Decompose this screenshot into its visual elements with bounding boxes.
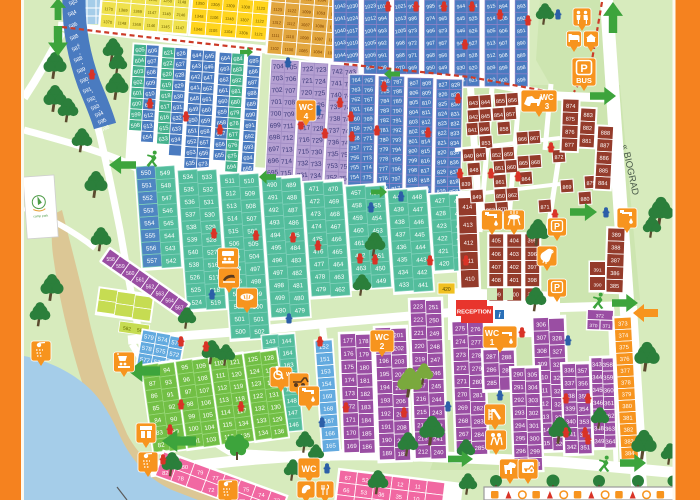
svg-text:1346: 1346 bbox=[193, 26, 203, 32]
svg-text:189: 189 bbox=[382, 451, 393, 457]
svg-text:854: 854 bbox=[494, 113, 503, 120]
svg-text:538: 538 bbox=[186, 224, 197, 232]
svg-text:174: 174 bbox=[344, 378, 355, 384]
svg-text:342: 342 bbox=[567, 445, 578, 451]
svg-text:513: 513 bbox=[226, 203, 237, 211]
svg-text:558: 558 bbox=[106, 257, 115, 263]
svg-text:555: 555 bbox=[145, 232, 156, 240]
svg-text:582: 582 bbox=[123, 326, 132, 333]
svg-text:RECEPTION: RECEPTION bbox=[457, 310, 491, 316]
svg-text:308: 308 bbox=[537, 349, 548, 355]
svg-text:108: 108 bbox=[197, 375, 209, 383]
svg-text:184: 184 bbox=[361, 418, 372, 424]
svg-text:511: 511 bbox=[225, 177, 236, 185]
svg-text:285: 285 bbox=[475, 446, 486, 452]
svg-text:849: 849 bbox=[472, 195, 481, 202]
svg-text:190: 190 bbox=[382, 438, 393, 444]
svg-text:489: 489 bbox=[286, 182, 297, 190]
svg-text:536: 536 bbox=[184, 199, 195, 207]
svg-text:10: 10 bbox=[413, 497, 420, 500]
svg-text:875: 875 bbox=[566, 117, 576, 123]
svg-text:276: 276 bbox=[470, 327, 481, 333]
svg-text:734: 734 bbox=[310, 172, 322, 180]
svg-text:72: 72 bbox=[208, 488, 214, 494]
svg-text:445: 445 bbox=[414, 231, 425, 239]
svg-text:510: 510 bbox=[244, 178, 255, 186]
svg-text:206: 206 bbox=[396, 399, 407, 405]
svg-text:130: 130 bbox=[270, 403, 282, 411]
svg-text:460: 460 bbox=[353, 227, 364, 235]
svg-text:553: 553 bbox=[143, 207, 154, 215]
svg-text:375: 375 bbox=[619, 345, 629, 351]
svg-text:381: 381 bbox=[623, 416, 633, 422]
svg-text:153: 153 bbox=[321, 369, 332, 376]
svg-text:487: 487 bbox=[287, 207, 298, 215]
svg-text:36: 36 bbox=[378, 492, 385, 499]
svg-text:105: 105 bbox=[202, 411, 214, 419]
svg-text:722: 722 bbox=[302, 66, 314, 74]
svg-text:857: 857 bbox=[506, 112, 515, 119]
svg-text:457: 457 bbox=[351, 189, 362, 197]
svg-text:1147: 1147 bbox=[175, 25, 185, 31]
svg-text:1112: 1112 bbox=[287, 21, 296, 27]
svg-text:509: 509 bbox=[245, 190, 256, 198]
svg-text:732: 732 bbox=[297, 160, 309, 168]
svg-text:398: 398 bbox=[528, 278, 537, 284]
svg-text:499: 499 bbox=[274, 295, 285, 303]
svg-text:136: 136 bbox=[274, 428, 286, 436]
svg-text:871: 871 bbox=[540, 205, 549, 212]
svg-text:442: 442 bbox=[417, 269, 428, 277]
svg-text:1148: 1148 bbox=[177, 0, 187, 5]
svg-text:733: 733 bbox=[310, 161, 322, 169]
svg-text:195: 195 bbox=[379, 372, 390, 378]
svg-text:82: 82 bbox=[162, 471, 168, 477]
svg-text:470: 470 bbox=[328, 186, 339, 194]
svg-text:459: 459 bbox=[352, 215, 363, 223]
svg-text:706: 706 bbox=[285, 76, 297, 84]
svg-text:397: 397 bbox=[528, 265, 537, 271]
svg-text:1350: 1350 bbox=[195, 0, 205, 6]
svg-text:165: 165 bbox=[326, 443, 337, 450]
svg-text:166: 166 bbox=[325, 431, 336, 438]
svg-text:482: 482 bbox=[292, 270, 303, 278]
svg-text:78: 78 bbox=[177, 477, 183, 483]
svg-text:728: 728 bbox=[312, 125, 324, 133]
svg-text:421: 421 bbox=[438, 248, 449, 256]
svg-text:714: 714 bbox=[281, 158, 293, 166]
svg-text:700: 700 bbox=[270, 110, 282, 118]
svg-text:115: 115 bbox=[222, 421, 233, 429]
svg-text:707: 707 bbox=[285, 87, 297, 95]
svg-text:483: 483 bbox=[291, 257, 302, 265]
svg-text:448: 448 bbox=[412, 194, 423, 202]
svg-text:107: 107 bbox=[199, 387, 211, 395]
svg-text:720: 720 bbox=[301, 89, 313, 97]
svg-text:1102: 1102 bbox=[270, 46, 280, 52]
svg-text:562: 562 bbox=[146, 285, 155, 291]
svg-text:463: 463 bbox=[356, 265, 367, 273]
svg-text:846: 846 bbox=[480, 127, 489, 134]
svg-text:491: 491 bbox=[267, 194, 278, 202]
svg-text:480: 480 bbox=[275, 307, 286, 315]
svg-text:285: 285 bbox=[487, 381, 498, 387]
svg-text:391: 391 bbox=[593, 268, 601, 274]
svg-text:443: 443 bbox=[416, 256, 427, 264]
svg-text:344: 344 bbox=[592, 375, 603, 381]
svg-text:220: 220 bbox=[414, 344, 425, 350]
svg-text:279: 279 bbox=[472, 367, 483, 373]
svg-text:299: 299 bbox=[530, 449, 541, 455]
svg-text:124: 124 bbox=[249, 368, 261, 376]
svg-text:387: 387 bbox=[611, 258, 621, 264]
svg-text:435: 435 bbox=[397, 256, 408, 264]
svg-text:1099: 1099 bbox=[302, 9, 312, 15]
svg-text:500: 500 bbox=[235, 328, 246, 336]
svg-text:737: 737 bbox=[328, 127, 340, 135]
svg-text:711: 711 bbox=[283, 123, 294, 131]
svg-text:300: 300 bbox=[529, 436, 540, 442]
svg-text:492: 492 bbox=[268, 207, 279, 215]
svg-text:458: 458 bbox=[351, 202, 362, 210]
svg-text:1122: 1122 bbox=[255, 18, 265, 24]
svg-text:881: 881 bbox=[582, 139, 592, 145]
svg-text:283: 283 bbox=[474, 419, 485, 425]
svg-text:848: 848 bbox=[469, 168, 478, 175]
svg-text:402: 402 bbox=[510, 265, 519, 271]
svg-text:479: 479 bbox=[316, 286, 327, 294]
svg-text:493: 493 bbox=[269, 219, 280, 227]
svg-text:1309: 1309 bbox=[226, 3, 236, 9]
svg-text:1053: 1053 bbox=[316, 10, 326, 16]
svg-text:545: 545 bbox=[163, 220, 174, 228]
svg-text:303: 303 bbox=[528, 398, 539, 404]
svg-text:1308: 1308 bbox=[241, 4, 251, 10]
svg-text:850: 850 bbox=[496, 194, 505, 201]
svg-text:880: 880 bbox=[580, 197, 589, 204]
svg-text:730: 730 bbox=[311, 149, 323, 157]
svg-text:742: 742 bbox=[332, 68, 344, 76]
svg-text:134: 134 bbox=[258, 429, 270, 437]
svg-text:353: 353 bbox=[579, 420, 590, 426]
svg-text:427: 427 bbox=[435, 197, 446, 205]
svg-text:515: 515 bbox=[228, 228, 239, 236]
svg-text:110: 110 bbox=[214, 359, 225, 367]
svg-text:1106: 1106 bbox=[210, 15, 220, 21]
svg-text:336: 336 bbox=[564, 368, 575, 374]
svg-text:1306: 1306 bbox=[239, 30, 249, 36]
svg-text:481: 481 bbox=[293, 282, 304, 290]
svg-text:1110: 1110 bbox=[286, 34, 295, 40]
svg-text:852: 852 bbox=[492, 153, 501, 160]
svg-text:129: 129 bbox=[272, 416, 284, 424]
svg-text:346: 346 bbox=[593, 401, 604, 407]
svg-text:343: 343 bbox=[592, 362, 603, 368]
svg-text:1111: 1111 bbox=[271, 33, 280, 39]
svg-text:1312: 1312 bbox=[272, 20, 282, 26]
svg-text:1370: 1370 bbox=[103, 19, 113, 25]
svg-text:851: 851 bbox=[495, 166, 504, 173]
svg-text:286: 286 bbox=[486, 368, 497, 374]
svg-text:181: 181 bbox=[360, 379, 371, 385]
svg-text:185: 185 bbox=[362, 431, 373, 437]
svg-text:143: 143 bbox=[265, 339, 276, 346]
svg-text:202: 202 bbox=[394, 346, 405, 352]
svg-text:1105: 1105 bbox=[209, 28, 219, 34]
svg-text:887: 887 bbox=[600, 143, 610, 149]
svg-text:171: 171 bbox=[346, 417, 357, 423]
svg-text:1085: 1085 bbox=[299, 48, 309, 54]
svg-text:410: 410 bbox=[465, 277, 475, 283]
svg-text:721: 721 bbox=[301, 77, 313, 85]
svg-text:507: 507 bbox=[246, 215, 257, 223]
svg-text:845: 845 bbox=[481, 114, 490, 121]
svg-text:360: 360 bbox=[604, 388, 615, 394]
svg-text:133: 133 bbox=[256, 417, 268, 425]
svg-text:131: 131 bbox=[268, 391, 280, 399]
svg-text:221: 221 bbox=[414, 331, 425, 337]
svg-text:497: 497 bbox=[273, 269, 284, 277]
svg-text:80: 80 bbox=[182, 465, 188, 471]
svg-text:401: 401 bbox=[510, 278, 519, 284]
svg-text:542: 542 bbox=[166, 258, 177, 266]
svg-text:327: 327 bbox=[552, 349, 563, 355]
svg-text:337: 337 bbox=[564, 381, 575, 387]
svg-text:290: 290 bbox=[513, 372, 524, 378]
svg-text:196: 196 bbox=[379, 359, 390, 365]
svg-text:551: 551 bbox=[141, 182, 152, 190]
svg-text:559: 559 bbox=[116, 264, 125, 270]
svg-text:874: 874 bbox=[566, 104, 576, 110]
svg-text:699: 699 bbox=[269, 122, 281, 130]
svg-text:215: 215 bbox=[417, 410, 428, 416]
svg-text:1: 1 bbox=[490, 337, 495, 347]
svg-text:713: 713 bbox=[281, 146, 293, 154]
svg-text:439: 439 bbox=[393, 206, 404, 214]
svg-text:104: 104 bbox=[204, 424, 216, 432]
svg-text:249: 249 bbox=[429, 331, 440, 337]
svg-text:385: 385 bbox=[610, 284, 620, 290]
svg-text:P: P bbox=[554, 222, 560, 232]
svg-text:724: 724 bbox=[315, 78, 327, 86]
svg-text:1369: 1369 bbox=[133, 8, 143, 14]
svg-text:467: 467 bbox=[330, 223, 341, 231]
svg-text:1121: 1121 bbox=[254, 31, 264, 37]
svg-text:702: 702 bbox=[271, 87, 283, 95]
svg-text:498: 498 bbox=[251, 278, 262, 286]
svg-text:251: 251 bbox=[428, 305, 439, 311]
svg-text:414: 414 bbox=[462, 205, 473, 211]
svg-text:374: 374 bbox=[618, 333, 629, 340]
svg-text:855: 855 bbox=[496, 99, 505, 106]
svg-text:420: 420 bbox=[442, 287, 451, 293]
svg-text:883: 883 bbox=[583, 113, 593, 119]
svg-text:868: 868 bbox=[531, 160, 540, 167]
svg-text:154: 154 bbox=[321, 382, 332, 389]
svg-text:1168: 1168 bbox=[132, 21, 142, 27]
svg-text:560: 560 bbox=[126, 271, 135, 277]
svg-text:738: 738 bbox=[329, 115, 341, 123]
svg-text:876: 876 bbox=[565, 130, 575, 136]
svg-text:524: 524 bbox=[191, 299, 202, 307]
svg-text:696: 696 bbox=[268, 157, 280, 165]
svg-text:371: 371 bbox=[602, 324, 611, 330]
svg-text:538: 538 bbox=[189, 261, 200, 269]
svg-text:446: 446 bbox=[413, 219, 424, 227]
svg-text:295: 295 bbox=[515, 436, 526, 442]
svg-text:112: 112 bbox=[217, 384, 228, 392]
svg-text:378: 378 bbox=[621, 380, 631, 386]
svg-text:537: 537 bbox=[185, 211, 196, 219]
svg-text:843: 843 bbox=[469, 101, 478, 108]
svg-text:1147: 1147 bbox=[148, 10, 158, 16]
svg-text:869: 869 bbox=[562, 185, 571, 192]
svg-text:1123: 1123 bbox=[273, 7, 283, 13]
svg-text:708: 708 bbox=[284, 99, 296, 107]
svg-text:1148: 1148 bbox=[225, 16, 235, 22]
svg-text:267: 267 bbox=[459, 432, 470, 438]
svg-text:357: 357 bbox=[577, 368, 588, 374]
svg-text:886: 886 bbox=[599, 156, 609, 162]
svg-text:882: 882 bbox=[583, 126, 593, 132]
svg-text:53: 53 bbox=[360, 490, 367, 497]
svg-text:709: 709 bbox=[283, 111, 295, 119]
svg-text:549: 549 bbox=[160, 170, 171, 178]
svg-text:712: 712 bbox=[282, 135, 294, 143]
svg-text:716: 716 bbox=[298, 136, 310, 144]
svg-text:433: 433 bbox=[399, 281, 410, 289]
svg-text:396: 396 bbox=[528, 252, 537, 258]
svg-text:192: 192 bbox=[381, 411, 392, 417]
svg-text:219: 219 bbox=[415, 357, 426, 363]
svg-text:420: 420 bbox=[439, 260, 450, 268]
svg-text:176: 176 bbox=[343, 352, 354, 358]
svg-text:1148: 1148 bbox=[162, 11, 172, 17]
svg-text:389: 389 bbox=[611, 233, 621, 239]
svg-text:35: 35 bbox=[395, 494, 402, 500]
svg-text:183: 183 bbox=[361, 405, 372, 411]
svg-text:248: 248 bbox=[430, 345, 441, 351]
svg-text:535: 535 bbox=[183, 186, 194, 194]
svg-text:479: 479 bbox=[294, 307, 305, 315]
svg-text:884: 884 bbox=[598, 181, 608, 187]
svg-text:477: 477 bbox=[314, 261, 325, 269]
svg-text:193: 193 bbox=[380, 398, 391, 404]
svg-text:468: 468 bbox=[329, 211, 340, 219]
svg-text:506: 506 bbox=[229, 240, 240, 248]
svg-text:111: 111 bbox=[215, 372, 226, 380]
svg-text:307: 307 bbox=[536, 336, 547, 342]
svg-text:291: 291 bbox=[514, 385, 525, 391]
svg-text:132: 132 bbox=[254, 405, 266, 413]
svg-text:304: 304 bbox=[528, 385, 539, 391]
svg-text:208: 208 bbox=[397, 425, 408, 431]
svg-text:175: 175 bbox=[344, 365, 355, 371]
svg-text:P: P bbox=[554, 283, 560, 293]
svg-text:306: 306 bbox=[536, 322, 547, 328]
svg-text:170: 170 bbox=[346, 431, 357, 437]
svg-text:191: 191 bbox=[381, 425, 392, 431]
svg-text:701: 701 bbox=[271, 98, 283, 106]
svg-text:114: 114 bbox=[220, 409, 231, 417]
svg-text:109: 109 bbox=[195, 362, 207, 370]
svg-text:388: 388 bbox=[611, 245, 621, 251]
svg-text:496: 496 bbox=[272, 257, 283, 265]
svg-text:125: 125 bbox=[247, 355, 259, 363]
svg-text:2146: 2146 bbox=[176, 12, 186, 18]
svg-text:436: 436 bbox=[396, 244, 407, 252]
svg-text:494: 494 bbox=[270, 232, 281, 240]
svg-text:292: 292 bbox=[514, 398, 525, 404]
svg-text:563: 563 bbox=[156, 291, 165, 297]
svg-text:473: 473 bbox=[310, 211, 321, 219]
svg-text:704: 704 bbox=[273, 63, 285, 71]
svg-text:501: 501 bbox=[234, 316, 245, 324]
svg-text:119: 119 bbox=[233, 383, 244, 391]
svg-text:698: 698 bbox=[269, 134, 281, 142]
svg-text:464: 464 bbox=[333, 261, 344, 269]
svg-text:180: 180 bbox=[359, 365, 370, 371]
svg-text:164: 164 bbox=[282, 351, 293, 358]
svg-text:1369: 1369 bbox=[118, 7, 128, 13]
svg-text:498: 498 bbox=[274, 282, 285, 290]
svg-text:454: 454 bbox=[371, 215, 382, 223]
svg-text:1084: 1084 bbox=[313, 49, 323, 55]
svg-text:423: 423 bbox=[436, 223, 447, 231]
svg-text:472: 472 bbox=[309, 198, 320, 206]
svg-text:466: 466 bbox=[331, 236, 342, 244]
svg-text:484: 484 bbox=[290, 244, 301, 252]
svg-text:271: 271 bbox=[457, 379, 468, 385]
svg-text:567: 567 bbox=[175, 305, 184, 311]
svg-text:203: 203 bbox=[394, 359, 405, 365]
svg-text:885: 885 bbox=[599, 168, 609, 174]
svg-text:461: 461 bbox=[354, 240, 365, 248]
svg-text:75: 75 bbox=[243, 487, 249, 493]
svg-text:WC: WC bbox=[302, 464, 317, 474]
svg-text:406: 406 bbox=[492, 252, 501, 258]
svg-text:272: 272 bbox=[456, 366, 467, 372]
svg-text:151: 151 bbox=[320, 357, 331, 364]
svg-text:BUS: BUS bbox=[576, 76, 592, 85]
svg-text:858: 858 bbox=[499, 127, 508, 134]
svg-text:177: 177 bbox=[343, 338, 354, 344]
svg-text:404: 404 bbox=[510, 239, 519, 245]
svg-text:526: 526 bbox=[190, 274, 201, 282]
svg-text:1308: 1308 bbox=[211, 2, 221, 8]
svg-text:354: 354 bbox=[579, 407, 590, 413]
svg-text:247: 247 bbox=[430, 358, 441, 364]
svg-text:186: 186 bbox=[362, 445, 373, 451]
svg-text:103: 103 bbox=[206, 436, 218, 444]
svg-text:284: 284 bbox=[474, 433, 485, 439]
svg-text:66: 66 bbox=[343, 488, 350, 495]
svg-text:532: 532 bbox=[203, 186, 214, 194]
svg-text:422: 422 bbox=[437, 235, 448, 243]
svg-text:128: 128 bbox=[263, 354, 275, 362]
svg-text:539: 539 bbox=[187, 236, 198, 244]
svg-text:444: 444 bbox=[415, 244, 426, 252]
svg-text:407: 407 bbox=[492, 265, 501, 271]
svg-text:1145: 1145 bbox=[161, 24, 171, 30]
svg-text:222: 222 bbox=[413, 318, 424, 324]
svg-text:527: 527 bbox=[207, 249, 218, 257]
svg-text:1098: 1098 bbox=[300, 35, 310, 41]
svg-text:540: 540 bbox=[188, 249, 199, 257]
svg-text:557: 557 bbox=[147, 257, 158, 265]
svg-text:269: 269 bbox=[458, 405, 469, 411]
svg-text:243: 243 bbox=[432, 411, 443, 417]
